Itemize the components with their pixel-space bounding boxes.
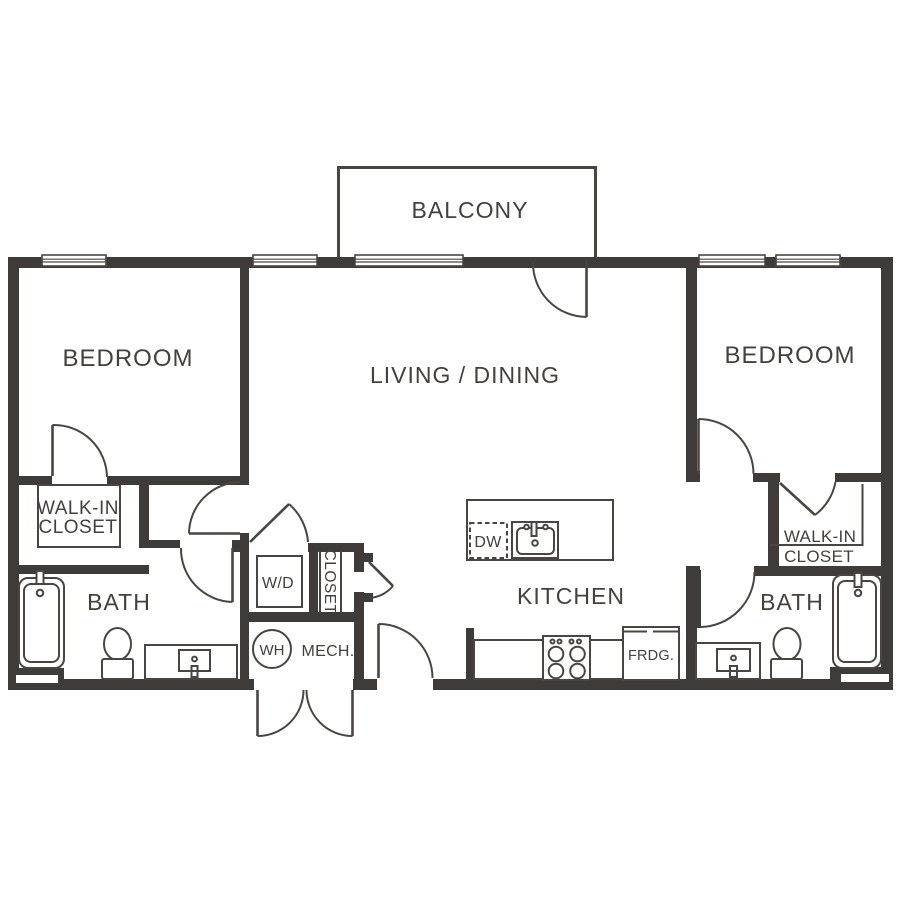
vanity-left xyxy=(145,645,237,679)
bedroom2-door-arc xyxy=(699,419,754,474)
bedroom-left-label: BEDROOM xyxy=(62,345,193,372)
washer-dryer-label: W/D xyxy=(262,575,294,592)
window-bedroom-left xyxy=(42,255,106,266)
living-dining-label: LIVING / DINING xyxy=(370,362,560,388)
floor-plan: BALCONY LIVING / DINING BEDROOM BEDROOM … xyxy=(0,0,900,900)
kitchen-label: KITCHEN xyxy=(517,583,625,609)
wall-closet-nub-upper xyxy=(364,553,373,562)
wall-bed1-bottom-a xyxy=(8,476,52,485)
wd-door-arc xyxy=(289,504,308,542)
mech-label: MECH. xyxy=(301,643,354,660)
bedroom-right-label: BEDROOM xyxy=(724,342,855,369)
wall-bed1-divider xyxy=(240,268,249,478)
wall-bed2-bottom-b xyxy=(835,473,881,482)
wall-mech-right xyxy=(354,622,364,679)
closet2-door-leaf xyxy=(780,483,815,515)
window-balcony xyxy=(355,255,463,266)
wall-closet-right-upper xyxy=(354,543,364,572)
mech-door-arc-right xyxy=(307,690,353,736)
fridge-label: FRDG. xyxy=(628,648,674,664)
wall-bath2-door-leaf xyxy=(697,570,701,628)
walkin-closet-right-label-2: CLOSET xyxy=(784,547,854,566)
floor-plan-drawing: BALCONY LIVING / DINING BEDROOM BEDROOM … xyxy=(0,0,900,900)
bath2-door-arc xyxy=(701,572,755,627)
bath-left-label: BATH xyxy=(87,589,151,615)
wall-bed2-divider xyxy=(686,268,697,477)
mech-door-arc-left xyxy=(258,690,304,736)
wall-right xyxy=(881,257,893,690)
walkin-closet-right-label-1: WALK-IN xyxy=(784,527,856,546)
balcony-label: BALCONY xyxy=(412,197,529,223)
bedroom1-door-arc xyxy=(189,482,240,534)
wall-closet1-bottom xyxy=(8,565,149,574)
closet1-door-arc xyxy=(53,425,108,477)
water-heater-label: WH xyxy=(260,642,285,659)
entry-door-arc xyxy=(379,624,433,678)
toilet-right xyxy=(771,628,802,679)
walkin-closet-left-label-1: WALK-IN xyxy=(37,498,119,519)
wall-left xyxy=(8,257,19,690)
dishwasher-label: DW xyxy=(474,534,502,551)
walkin-closet-left-label-2: CLOSET xyxy=(38,517,117,538)
wall-bath1-hinge-block xyxy=(232,540,249,552)
wall-wd-closet-divider xyxy=(309,543,318,612)
bath-right-label: BATH xyxy=(760,589,824,615)
wall-mech-top xyxy=(240,612,364,622)
bath1-window-slit xyxy=(16,675,58,683)
bathtub-left xyxy=(19,571,64,668)
vanity-right xyxy=(696,643,760,679)
balcony-door-arc xyxy=(533,262,587,317)
hall-closet-door-arc xyxy=(370,586,394,598)
wall-center-lower xyxy=(240,533,249,679)
bathtub-right xyxy=(833,573,881,668)
wd-door-leaf xyxy=(250,504,289,542)
wall-bath1-top xyxy=(149,540,180,548)
stove xyxy=(543,636,590,680)
hall-closet-door-leaf xyxy=(369,562,393,586)
walls xyxy=(8,257,893,690)
toilet-left xyxy=(102,628,133,679)
wall-closet1-right xyxy=(139,476,149,548)
closet2-door-arc xyxy=(815,482,836,515)
wall-closet2-left xyxy=(768,473,779,570)
kitchen-island xyxy=(467,500,613,560)
hall-closet-label: CLOSET xyxy=(321,549,338,614)
bath2-window-slit xyxy=(841,674,889,682)
wall-kitchen-stub xyxy=(466,628,474,679)
window-living-left xyxy=(253,255,317,266)
bath1-door-arc xyxy=(181,548,233,602)
window-bedroom-right-b xyxy=(776,255,840,266)
wall-bottom-mid xyxy=(353,679,377,690)
window-bedroom-right-a xyxy=(699,255,765,266)
